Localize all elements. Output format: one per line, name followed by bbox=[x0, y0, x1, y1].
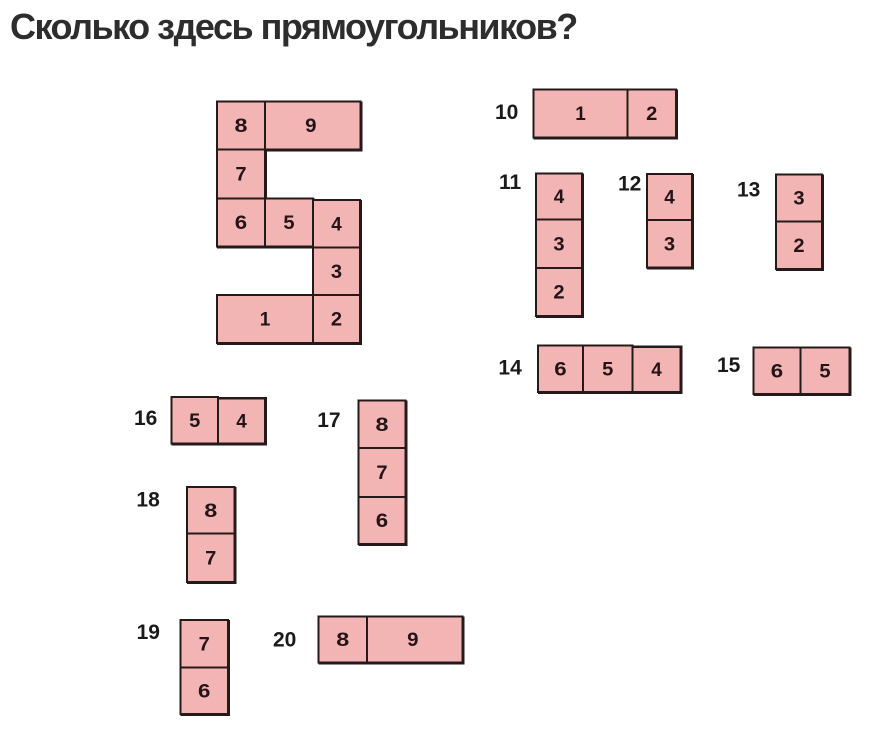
svg-text:7: 7 bbox=[376, 463, 387, 484]
svg-text:17: 17 bbox=[317, 409, 340, 432]
svg-text:4: 4 bbox=[554, 187, 565, 208]
svg-text:4: 4 bbox=[236, 412, 247, 433]
svg-text:7: 7 bbox=[199, 635, 210, 656]
svg-text:1: 1 bbox=[575, 104, 586, 125]
svg-text:2: 2 bbox=[553, 283, 564, 304]
svg-text:3: 3 bbox=[664, 234, 675, 255]
svg-text:9: 9 bbox=[305, 116, 316, 137]
svg-text:16: 16 bbox=[134, 407, 157, 430]
svg-text:6: 6 bbox=[771, 361, 783, 382]
svg-text:14: 14 bbox=[498, 357, 522, 380]
svg-text:1: 1 bbox=[260, 310, 271, 331]
svg-text:8: 8 bbox=[235, 116, 248, 137]
svg-text:12: 12 bbox=[618, 173, 641, 196]
svg-text:8: 8 bbox=[204, 501, 217, 522]
svg-text:3: 3 bbox=[331, 262, 342, 283]
svg-text:2: 2 bbox=[331, 310, 342, 331]
svg-text:9: 9 bbox=[407, 630, 418, 651]
svg-text:8: 8 bbox=[376, 415, 389, 436]
svg-text:7: 7 bbox=[205, 549, 216, 570]
svg-text:13: 13 bbox=[737, 179, 760, 202]
svg-text:15: 15 bbox=[717, 354, 741, 377]
svg-text:10: 10 bbox=[495, 101, 518, 124]
svg-text:6: 6 bbox=[235, 213, 247, 234]
svg-text:2: 2 bbox=[793, 236, 804, 257]
svg-text:3: 3 bbox=[553, 234, 564, 255]
svg-text:5: 5 bbox=[602, 359, 614, 380]
svg-text:5: 5 bbox=[819, 361, 831, 382]
svg-text:19: 19 bbox=[137, 621, 160, 644]
svg-text:4: 4 bbox=[651, 360, 662, 381]
svg-text:5: 5 bbox=[189, 411, 201, 432]
svg-text:2: 2 bbox=[646, 104, 657, 125]
svg-text:11: 11 bbox=[499, 171, 522, 194]
svg-text:18: 18 bbox=[136, 489, 160, 512]
svg-text:8: 8 bbox=[336, 630, 349, 651]
svg-text:4: 4 bbox=[331, 214, 342, 235]
svg-text:5: 5 bbox=[283, 213, 295, 234]
svg-text:7: 7 bbox=[235, 165, 246, 186]
svg-text:6: 6 bbox=[554, 359, 566, 380]
svg-text:6: 6 bbox=[376, 511, 388, 532]
svg-text:20: 20 bbox=[273, 629, 296, 652]
svg-text:4: 4 bbox=[664, 188, 675, 209]
svg-text:6: 6 bbox=[198, 682, 210, 703]
svg-text:3: 3 bbox=[793, 189, 804, 210]
